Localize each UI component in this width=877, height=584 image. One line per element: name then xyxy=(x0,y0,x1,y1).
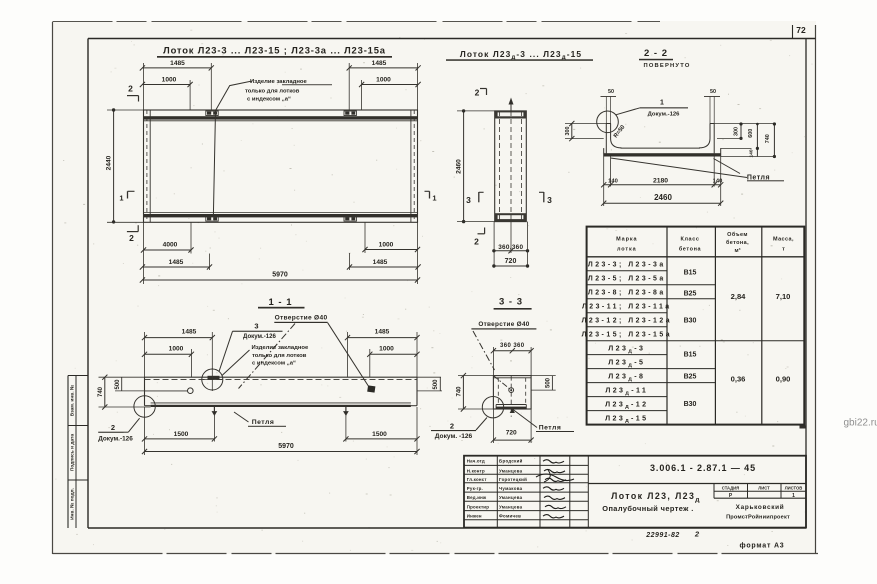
svg-text:1000: 1000 xyxy=(379,346,394,353)
svg-text:Отверстие Ø40: Отверстие Ø40 xyxy=(275,315,328,322)
svg-text:2: 2 xyxy=(111,423,115,432)
svg-text:Гл.конст: Гл.конст xyxy=(467,477,488,482)
svg-text:1 - 1: 1 - 1 xyxy=(268,297,292,308)
svg-text:2: 2 xyxy=(129,233,134,243)
svg-text:5970: 5970 xyxy=(278,443,294,450)
svg-text:720: 720 xyxy=(506,430,517,437)
svg-text:с индексом „а“: с индексом „а“ xyxy=(247,97,291,103)
svg-text:1500: 1500 xyxy=(372,431,387,438)
svg-text:Л23-5; Л23-5а: Л23-5; Л23-5а xyxy=(588,276,666,283)
svg-text:2460: 2460 xyxy=(654,193,672,202)
svg-text:Л23-12; Л23-12а: Л23-12; Л23-12а xyxy=(582,318,672,325)
svg-text:Опалубочный чертеж .: Опалубочный чертеж . xyxy=(602,504,693,513)
svg-text:3: 3 xyxy=(254,322,258,331)
svg-text:300: 300 xyxy=(734,127,740,136)
svg-text:Л23-11; Л23-11а: Л23-11; Л23-11а xyxy=(582,304,672,311)
svg-text:Докум.-126: Докум.-126 xyxy=(98,436,133,443)
svg-text:Л23-15; Л23-15а: Л23-15; Л23-15а xyxy=(582,332,672,339)
svg-text:3 - 3: 3 - 3 xyxy=(499,296,523,307)
svg-text:740: 740 xyxy=(765,134,771,143)
svg-text:В30: В30 xyxy=(684,401,697,408)
svg-text:72: 72 xyxy=(796,25,806,35)
svg-text:1485: 1485 xyxy=(169,259,184,266)
svg-text:Отверстие Ø40: Отверстие Ø40 xyxy=(478,321,529,328)
svg-text:1: 1 xyxy=(119,194,123,203)
svg-text:50: 50 xyxy=(710,89,716,95)
svg-text:2: 2 xyxy=(474,237,479,247)
svg-text:формат А3: формат А3 xyxy=(740,543,785,550)
svg-text:1485: 1485 xyxy=(373,259,388,266)
svg-text:Л23-8; Л23-8а: Л23-8; Л23-8а xyxy=(588,290,666,297)
svg-text:720: 720 xyxy=(505,258,517,265)
svg-text:1485: 1485 xyxy=(182,329,197,336)
svg-text:2 - 2: 2 - 2 xyxy=(644,48,668,59)
svg-text:500: 500 xyxy=(433,379,439,390)
svg-text:1: 1 xyxy=(432,194,436,203)
svg-text:В15: В15 xyxy=(684,352,697,359)
svg-text:Чумакова: Чумакова xyxy=(499,486,523,491)
svg-text:1000: 1000 xyxy=(169,346,184,353)
svg-text:Уманцева: Уманцева xyxy=(499,468,523,473)
svg-text:4000: 4000 xyxy=(163,242,178,249)
svg-text:В25: В25 xyxy=(684,374,697,381)
svg-text:В25: В25 xyxy=(684,291,697,298)
svg-text:22991-82: 22991-82 xyxy=(645,532,680,539)
svg-text:Лоток Л23-3 ... Л23-15 ; Л23: Лоток Л23-3 ... Л23-15 ; Л23-3а ... Л23-… xyxy=(163,44,386,55)
svg-text:ПромстРойниипроект: ПромстРойниипроект xyxy=(726,513,790,520)
svg-text:Объем: Объем xyxy=(727,231,748,238)
svg-text:Н.контр: Н.контр xyxy=(467,468,485,473)
svg-text:Подпись и дата: Подпись и дата xyxy=(69,434,75,471)
svg-text:50: 50 xyxy=(608,89,614,95)
svg-text:3: 3 xyxy=(547,195,552,205)
svg-text:только для лотков: только для лотков xyxy=(252,353,307,359)
svg-text:2: 2 xyxy=(475,88,480,98)
svg-text:Бродский: Бродский xyxy=(499,459,523,464)
svg-text:Нач.отд: Нач.отд xyxy=(467,459,485,464)
svg-text:500: 500 xyxy=(546,377,552,388)
svg-text:Изделие закладное: Изделие закладное xyxy=(250,79,308,85)
svg-text:2180: 2180 xyxy=(653,177,668,184)
svg-text:Инжен: Инжен xyxy=(467,514,482,519)
svg-text:ЛИСТ: ЛИСТ xyxy=(758,486,770,491)
svg-text:ПОВЕРНУТО: ПОВЕРНУТО xyxy=(643,63,690,69)
svg-text:3.006.1 - 2.87.1 — 45: 3.006.1 - 2.87.1 — 45 xyxy=(650,463,756,473)
svg-text:600: 600 xyxy=(748,129,754,138)
svg-text:с индексом „а“: с индексом „а“ xyxy=(252,360,296,366)
svg-text:Проектир: Проектир xyxy=(467,504,489,509)
svg-text:1500: 1500 xyxy=(174,431,189,438)
svg-text:1000: 1000 xyxy=(162,77,177,84)
svg-text:740: 740 xyxy=(457,386,463,397)
svg-text:Докум.-126: Докум.-126 xyxy=(243,333,277,340)
svg-text:м³: м³ xyxy=(735,247,741,254)
svg-text:Масса,: Масса, xyxy=(773,237,794,243)
svg-text:2: 2 xyxy=(450,422,454,431)
svg-text:5970: 5970 xyxy=(272,272,288,279)
svg-text:1: 1 xyxy=(792,493,795,499)
svg-text:Харьковский: Харьковский xyxy=(736,503,785,511)
svg-text:1485: 1485 xyxy=(375,329,390,336)
svg-text:1485: 1485 xyxy=(170,60,185,67)
svg-text:300: 300 xyxy=(565,127,571,136)
svg-text:1485: 1485 xyxy=(372,60,387,67)
svg-text:0,90: 0,90 xyxy=(776,375,791,384)
svg-text:7,10: 7,10 xyxy=(776,292,791,301)
svg-text:Рук-гр.: Рук-гр. xyxy=(467,486,483,491)
svg-text:360 360: 360 360 xyxy=(500,343,525,349)
svg-text:2440: 2440 xyxy=(106,155,113,170)
svg-text:Марка: Марка xyxy=(616,237,637,243)
svg-text:140: 140 xyxy=(608,178,618,184)
svg-text:Петля: Петля xyxy=(252,419,275,426)
svg-text:Уманцева: Уманцева xyxy=(499,495,523,500)
svg-text:1000: 1000 xyxy=(376,77,391,84)
svg-text:Докум. -126: Докум. -126 xyxy=(435,433,473,440)
svg-text:Горотецкий: Горотецкий xyxy=(499,477,527,482)
svg-text:0,36: 0,36 xyxy=(731,375,746,384)
svg-text:СТАДИЯ: СТАДИЯ xyxy=(722,486,739,491)
svg-text:В15: В15 xyxy=(684,270,697,277)
svg-text:740: 740 xyxy=(98,386,104,397)
svg-text:Уманцева: Уманцева xyxy=(499,504,523,509)
svg-text:Докум.-126: Докум.-126 xyxy=(648,112,681,118)
svg-text:gbi22.ru: gbi22.ru xyxy=(844,418,877,429)
svg-text:лотка: лотка xyxy=(617,247,637,253)
svg-text:т: т xyxy=(782,247,785,253)
svg-text:ЛИСТОВ: ЛИСТОВ xyxy=(785,486,803,491)
svg-text:Фомичев: Фомичев xyxy=(499,514,521,519)
svg-text:2460: 2460 xyxy=(456,159,463,174)
svg-text:1: 1 xyxy=(660,100,664,107)
svg-text:бетона,: бетона, xyxy=(726,239,749,246)
svg-text:Инв. № подл.: Инв. № подл. xyxy=(69,488,75,520)
svg-text:2: 2 xyxy=(128,84,133,94)
svg-text:2: 2 xyxy=(694,530,700,539)
svg-text:2,84: 2,84 xyxy=(731,292,747,301)
svg-text:Изделие закладное: Изделие закладное xyxy=(252,345,310,351)
svg-text:Л23-3; Л23-3а: Л23-3; Л23-3а xyxy=(588,262,666,269)
svg-text:только для лотков: только для лотков xyxy=(245,89,300,95)
svg-text:500: 500 xyxy=(115,379,121,390)
svg-text:В30: В30 xyxy=(684,318,697,325)
svg-text:Взам. инв. №: Взам. инв. № xyxy=(69,385,75,416)
svg-text:1000: 1000 xyxy=(379,242,394,249)
svg-text:140: 140 xyxy=(713,178,723,184)
svg-text:Вед.инж: Вед.инж xyxy=(467,495,487,500)
svg-text:Петля: Петля xyxy=(539,425,562,432)
svg-text:бетона: бетона xyxy=(679,246,702,253)
svg-text:3: 3 xyxy=(466,195,471,205)
svg-text:Класс: Класс xyxy=(680,237,699,243)
